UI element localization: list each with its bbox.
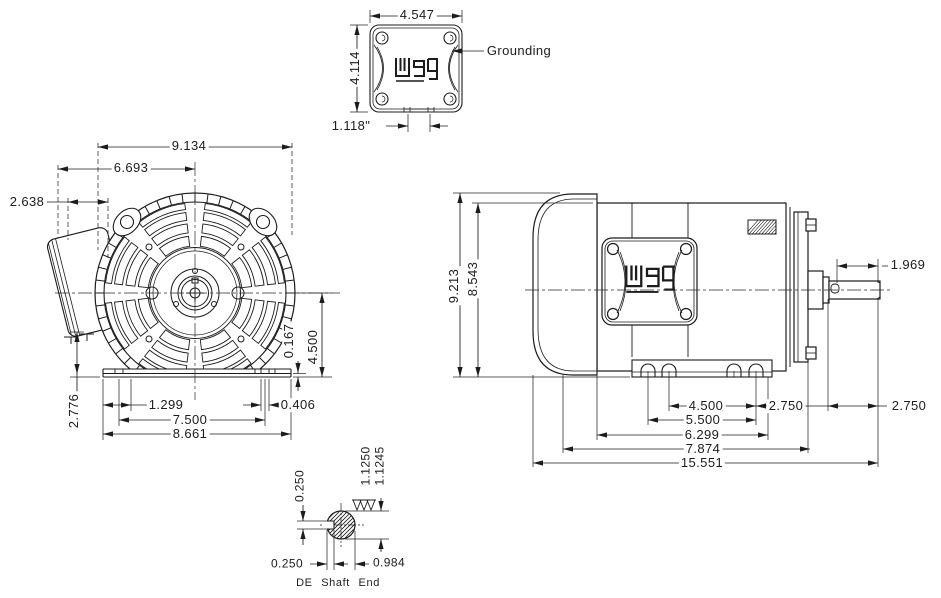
front-view-feet xyxy=(103,369,291,377)
surface-finish-icon xyxy=(352,500,376,510)
dim-keyway-depth: 0.250 xyxy=(269,558,305,571)
dim-foot-hole-spacing-short: 4.500 xyxy=(687,399,726,413)
dim-topbox-width: 4.547 xyxy=(398,8,437,22)
dim-box-width: 2.638 xyxy=(8,195,47,209)
dim-foot-overall-width: 8.661 xyxy=(171,427,210,441)
dim-flat-to-opposite: 0.984 xyxy=(371,557,407,570)
dim-shaft-usable-length: 1.969 xyxy=(889,258,928,272)
dim-foot-length: 6.299 xyxy=(683,428,722,442)
dim-fan-cover-diameter: 9.134 xyxy=(170,139,209,153)
dim-shaft-extension: 2.750 xyxy=(890,399,929,413)
dim-box-to-center: 6.693 xyxy=(112,161,151,175)
dim-foot-edge-to-hole: 1.299 xyxy=(147,398,186,412)
dim-shaft-center-height: 4.500 xyxy=(306,328,320,367)
dim-overall-height: 9.213 xyxy=(447,267,461,306)
dim-hole-to-mounting-face: 2.750 xyxy=(767,399,806,413)
shaft-detail-caption: DE Shaft End xyxy=(294,578,382,590)
dim-foot-slot-width: 0.406 xyxy=(279,398,318,412)
dim-knockout-spacing: 1.118" xyxy=(330,119,373,133)
dim-topbox-height: 4.114 xyxy=(348,49,362,87)
dim-frame-height: 8.543 xyxy=(466,260,480,299)
dim-shaft-diameter-min: 1.1245 xyxy=(374,444,387,487)
dim-foot-hole-spacing-long: 5.500 xyxy=(684,413,723,427)
dim-frame-length: 7.874 xyxy=(684,442,723,456)
side-view-feet xyxy=(632,360,772,377)
dim-box-bottom-to-base: 2.776 xyxy=(67,392,81,431)
drawing-linework xyxy=(0,0,941,598)
dim-foot-hole-span: 7.500 xyxy=(171,413,210,427)
dim-shaft-diameter-max: 1.1250 xyxy=(360,444,373,487)
top-view-terminal-box xyxy=(370,25,462,112)
motor-dimension-drawing: 4.547 4.114 1.118" Grounding 9.134 6.693… xyxy=(0,0,941,598)
grounding-label: Grounding xyxy=(485,44,553,58)
dim-keyway-width: 0.250 xyxy=(294,468,307,504)
dim-overall-length: 15.551 xyxy=(679,456,725,470)
shaft-detail xyxy=(294,500,376,547)
dim-pad-thickness: 0.167 xyxy=(282,322,296,361)
